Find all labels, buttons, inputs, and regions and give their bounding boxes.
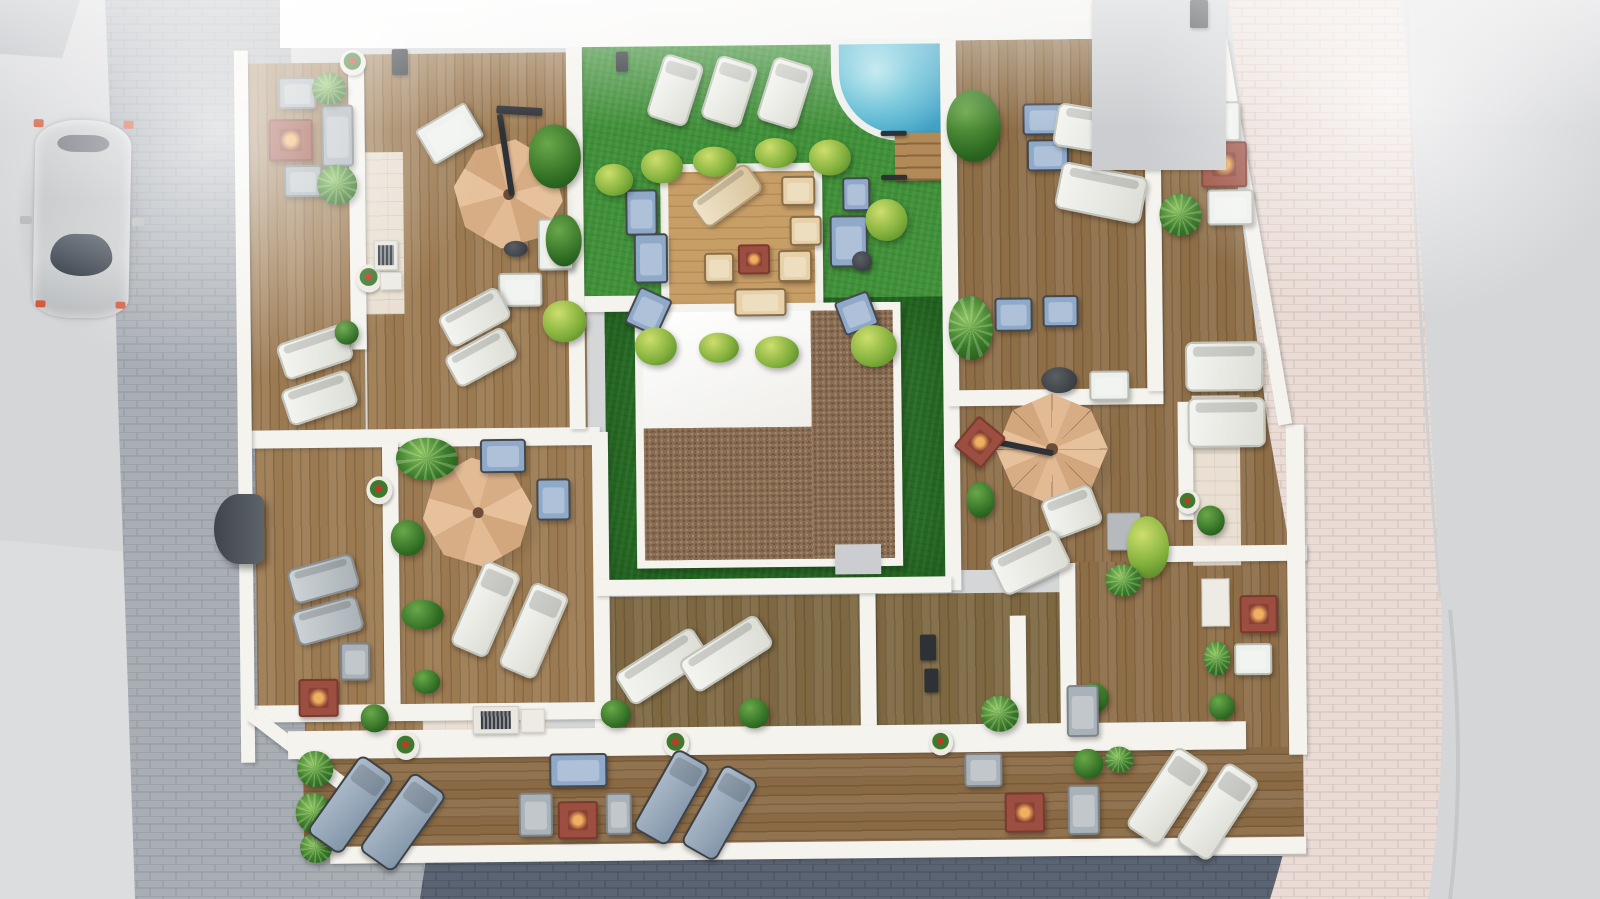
car-windshield (50, 233, 113, 276)
street-objects-layer (0, 0, 1600, 899)
top-haze (0, 0, 1600, 130)
car-light (36, 300, 46, 308)
car-rear-window (57, 135, 109, 153)
car-light (33, 119, 43, 127)
parked-car (24, 113, 140, 325)
car-mirror (132, 218, 143, 227)
car-light (115, 301, 125, 309)
street-furniture-bin (214, 494, 264, 564)
rooftop-terrace-rendering (0, 0, 1600, 899)
roof-vent (1190, 0, 1208, 28)
car-mirror (20, 216, 31, 225)
car-light (124, 121, 134, 129)
